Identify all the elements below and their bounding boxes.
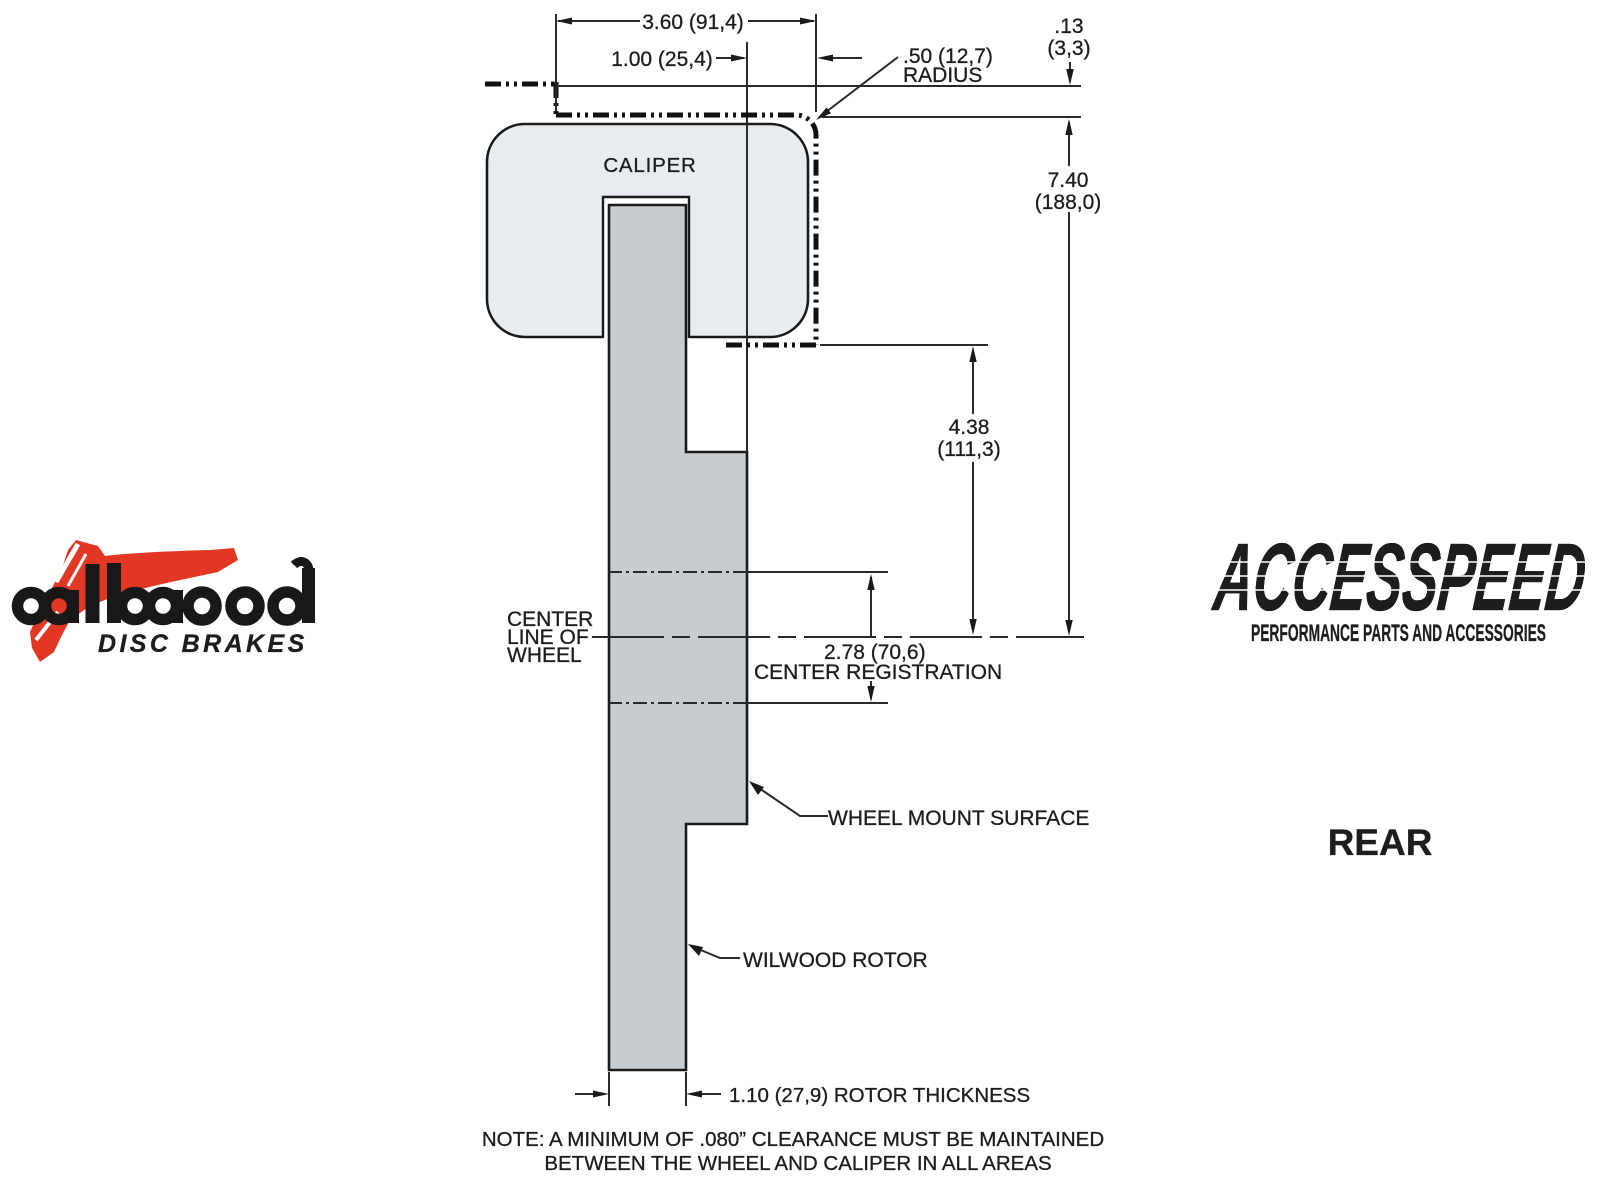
svg-text:NOTE: A MINIMUM OF .080” CLEAR: NOTE: A MINIMUM OF .080” CLEARANCE MUST …: [482, 1128, 1104, 1151]
svg-text:(111,3): (111,3): [937, 438, 1000, 461]
svg-text:4.38: 4.38: [949, 416, 990, 439]
svg-text:(3,3): (3,3): [1047, 37, 1090, 60]
svg-text:1.00 (25,4): 1.00 (25,4): [611, 48, 713, 71]
svg-text:ACCESSPEED: ACCESSPEED: [1209, 524, 1591, 631]
svg-text:WHEEL MOUNT SURFACE: WHEEL MOUNT SURFACE: [828, 807, 1089, 830]
svg-text:WHEEL: WHEEL: [507, 644, 582, 667]
svg-text:3.60 (91,4): 3.60 (91,4): [642, 11, 744, 34]
svg-text:REAR: REAR: [1328, 822, 1433, 863]
svg-text:BETWEEN THE WHEEL AND CALIPER: BETWEEN THE WHEEL AND CALIPER IN ALL ARE…: [544, 1152, 1051, 1175]
svg-text:.13: .13: [1054, 15, 1083, 38]
svg-text:7.40: 7.40: [1048, 169, 1089, 192]
svg-text:PERFORMANCE PARTS AND ACCESSOR: PERFORMANCE PARTS AND ACCESSORIES: [1251, 620, 1546, 647]
svg-text:WILWOOD ROTOR: WILWOOD ROTOR: [743, 949, 928, 972]
svg-text:RADIUS: RADIUS: [903, 64, 982, 87]
svg-text:DISC BRAKES: DISC BRAKES: [98, 630, 308, 658]
svg-text:CENTER REGISTRATION: CENTER REGISTRATION: [754, 661, 1002, 684]
svg-text:(188,0): (188,0): [1035, 191, 1102, 214]
svg-text:CALIPER: CALIPER: [603, 154, 696, 177]
svg-text:1.10 (27,9) ROTOR THICKNESS: 1.10 (27,9) ROTOR THICKNESS: [729, 1084, 1030, 1107]
